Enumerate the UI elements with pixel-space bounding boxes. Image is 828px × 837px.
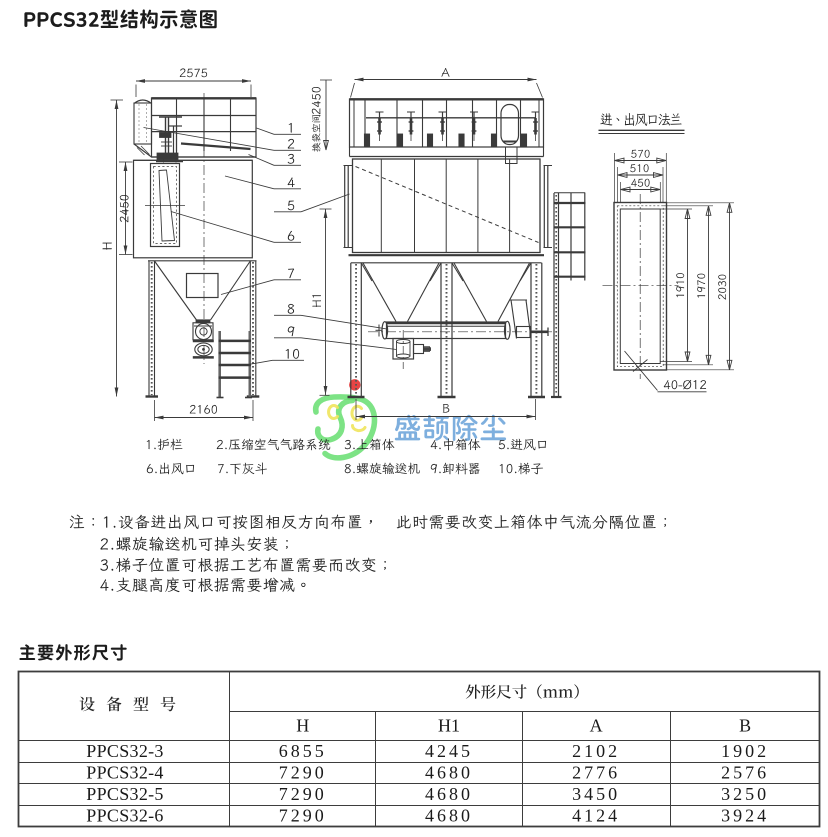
svg-text:7290: 7290: [279, 763, 327, 783]
svg-text:4680: 4680: [425, 763, 473, 783]
svg-text:4245: 4245: [425, 741, 473, 761]
svg-text:H1: H1: [438, 716, 460, 736]
svg-text:6855: 6855: [279, 741, 327, 761]
svg-text:PPCS32-4: PPCS32-4: [86, 763, 163, 783]
svg-text:4680: 4680: [425, 784, 473, 804]
svg-text:2102: 2102: [572, 741, 620, 761]
svg-text:4680: 4680: [425, 806, 473, 826]
svg-text:1902: 1902: [721, 741, 769, 761]
svg-text:PPCS32-3: PPCS32-3: [86, 741, 163, 761]
svg-text:3450: 3450: [572, 784, 620, 804]
svg-text:PPCS32-6: PPCS32-6: [86, 806, 163, 826]
svg-text:4124: 4124: [572, 806, 620, 826]
svg-text:A: A: [590, 716, 603, 736]
svg-text:H: H: [296, 716, 309, 736]
svg-text:3924: 3924: [721, 806, 769, 826]
svg-text:2576: 2576: [721, 763, 769, 783]
svg-text:B: B: [739, 716, 751, 736]
svg-text:7290: 7290: [279, 806, 327, 826]
svg-text:2776: 2776: [572, 763, 620, 783]
svg-text:3250: 3250: [721, 784, 769, 804]
svg-text:PPCS32-5: PPCS32-5: [86, 784, 163, 804]
svg-text:7290: 7290: [279, 784, 327, 804]
